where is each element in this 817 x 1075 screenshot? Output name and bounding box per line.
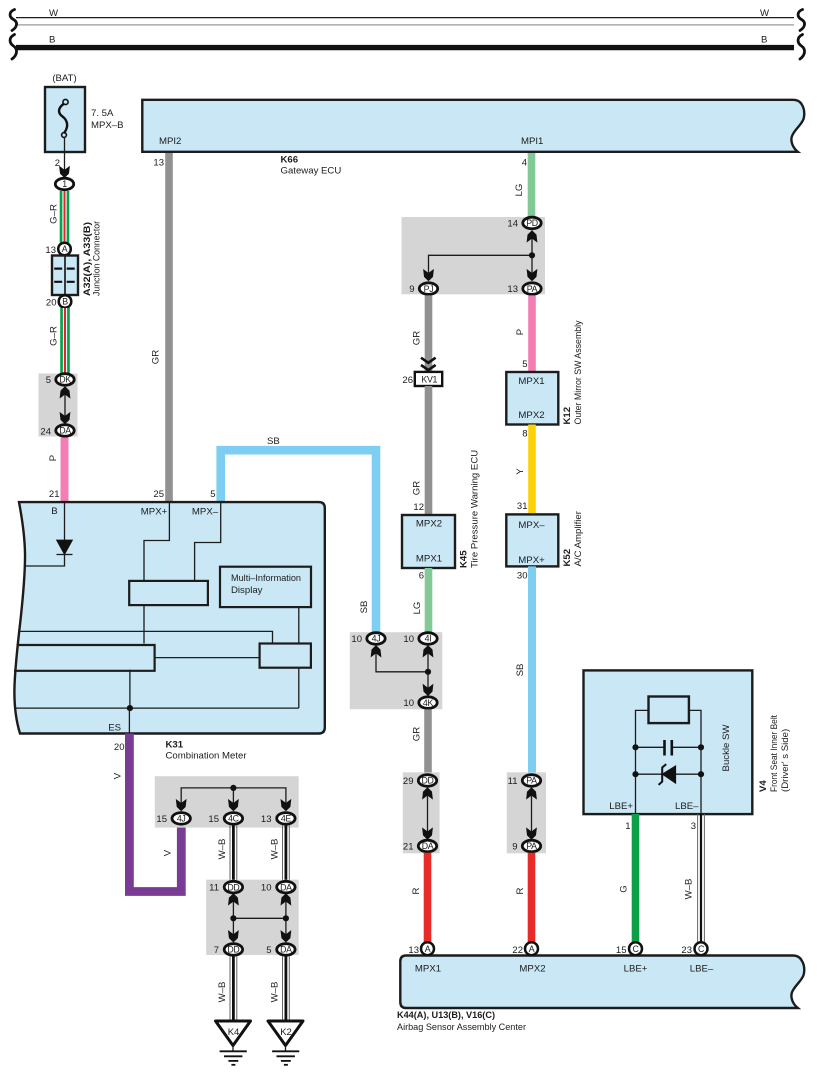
svg-text:21: 21 bbox=[403, 842, 414, 853]
svg-text:DK: DK bbox=[59, 375, 71, 385]
svg-text:23: 23 bbox=[681, 945, 692, 956]
svg-text:MPX–B: MPX–B bbox=[91, 120, 124, 131]
svg-text:1: 1 bbox=[62, 179, 67, 189]
svg-text:V4: V4 bbox=[758, 780, 769, 792]
svg-text:PA: PA bbox=[526, 776, 537, 786]
svg-text:PD: PD bbox=[526, 218, 538, 228]
svg-text:GR: GR bbox=[412, 331, 423, 345]
svg-text:15: 15 bbox=[156, 814, 167, 825]
svg-text:K2: K2 bbox=[280, 1027, 292, 1038]
svg-text:K4: K4 bbox=[228, 1027, 240, 1038]
svg-text:LG: LG bbox=[514, 184, 525, 197]
svg-text:LBE–: LBE– bbox=[675, 801, 699, 812]
svg-text:5: 5 bbox=[210, 489, 215, 500]
svg-text:(BAT): (BAT) bbox=[52, 73, 76, 84]
svg-text:14: 14 bbox=[507, 219, 518, 230]
svg-text:ES: ES bbox=[108, 723, 121, 734]
svg-text:MPI2: MPI2 bbox=[159, 136, 181, 147]
svg-text:4E: 4E bbox=[281, 814, 292, 824]
svg-text:10: 10 bbox=[351, 634, 362, 645]
svg-text:K12: K12 bbox=[562, 407, 573, 425]
svg-text:11: 11 bbox=[209, 883, 219, 894]
svg-text:4I: 4I bbox=[425, 634, 432, 644]
svg-text:MPX2: MPX2 bbox=[518, 410, 544, 421]
svg-text:V: V bbox=[163, 849, 174, 856]
svg-text:DA: DA bbox=[280, 945, 292, 955]
svg-text:A: A bbox=[62, 244, 68, 254]
svg-text:DD: DD bbox=[227, 945, 239, 955]
svg-text:20: 20 bbox=[46, 298, 57, 309]
svg-text:10: 10 bbox=[403, 634, 414, 645]
svg-text:4J: 4J bbox=[177, 814, 186, 824]
svg-text:W: W bbox=[49, 8, 59, 19]
svg-text:13: 13 bbox=[507, 284, 518, 295]
svg-text:B: B bbox=[62, 297, 68, 307]
svg-text:4: 4 bbox=[522, 158, 527, 169]
svg-text:MPX–: MPX– bbox=[192, 507, 219, 518]
svg-text:Multi–Information: Multi–Information bbox=[231, 573, 301, 584]
svg-text:DA: DA bbox=[59, 426, 71, 436]
svg-text:R: R bbox=[515, 887, 526, 894]
svg-text:7. 5A: 7. 5A bbox=[91, 108, 114, 119]
svg-text:MPX+: MPX+ bbox=[518, 555, 545, 566]
svg-text:29: 29 bbox=[403, 776, 414, 787]
svg-text:4J: 4J bbox=[372, 634, 381, 644]
svg-text:DA: DA bbox=[280, 882, 292, 892]
svg-text:15: 15 bbox=[616, 945, 627, 956]
svg-text:25: 25 bbox=[153, 489, 164, 500]
svg-text:5: 5 bbox=[522, 359, 527, 370]
svg-text:Buckle SW: Buckle SW bbox=[721, 724, 732, 772]
svg-text:A: A bbox=[425, 944, 431, 954]
svg-text:10: 10 bbox=[403, 698, 414, 709]
svg-text:9: 9 bbox=[409, 284, 414, 295]
svg-text:B: B bbox=[761, 35, 767, 46]
svg-text:6: 6 bbox=[419, 571, 424, 582]
svg-text:MPX1: MPX1 bbox=[518, 376, 544, 387]
svg-text:K31: K31 bbox=[166, 740, 184, 751]
svg-text:13: 13 bbox=[153, 158, 164, 169]
svg-text:13: 13 bbox=[408, 945, 419, 956]
svg-text:V: V bbox=[113, 772, 124, 779]
svg-text:20: 20 bbox=[114, 742, 125, 753]
svg-text:G: G bbox=[619, 885, 630, 892]
svg-text:24: 24 bbox=[40, 427, 51, 438]
svg-text:A: A bbox=[529, 944, 535, 954]
svg-text:W: W bbox=[760, 8, 770, 19]
svg-text:W–B: W–B bbox=[217, 839, 228, 860]
svg-text:SB: SB bbox=[359, 601, 370, 614]
svg-text:LBE+: LBE+ bbox=[624, 964, 648, 975]
svg-text:Tire Pressure Warning ECU: Tire Pressure Warning ECU bbox=[470, 450, 481, 568]
svg-text:7: 7 bbox=[214, 945, 219, 956]
svg-text:MPX–: MPX– bbox=[518, 520, 545, 531]
svg-text:MPX+: MPX+ bbox=[141, 507, 168, 518]
svg-text:26: 26 bbox=[402, 375, 413, 386]
svg-text:Airbag Sensor Assembly Center: Airbag Sensor Assembly Center bbox=[397, 1022, 527, 1033]
svg-text:PA: PA bbox=[527, 284, 538, 294]
svg-text:C: C bbox=[698, 944, 705, 954]
svg-text:11: 11 bbox=[508, 776, 518, 787]
svg-text:13: 13 bbox=[261, 814, 272, 825]
svg-text:W–B: W–B bbox=[270, 839, 281, 860]
svg-text:GR: GR bbox=[412, 481, 423, 495]
svg-text:LBE+: LBE+ bbox=[609, 801, 633, 812]
svg-text:K66: K66 bbox=[281, 155, 299, 166]
svg-text:Junction Connector: Junction Connector bbox=[92, 220, 103, 296]
svg-text:4C: 4C bbox=[228, 814, 240, 824]
svg-text:Combination Meter: Combination Meter bbox=[166, 751, 248, 762]
svg-text:G–R: G–R bbox=[49, 204, 60, 224]
svg-text:GR: GR bbox=[151, 350, 162, 364]
svg-text:(Driver' s Side): (Driver' s Side) bbox=[780, 729, 791, 792]
svg-text:MPX1: MPX1 bbox=[416, 554, 442, 565]
svg-text:P: P bbox=[48, 455, 59, 461]
svg-text:8: 8 bbox=[522, 429, 527, 440]
svg-text:G–R: G–R bbox=[49, 326, 60, 346]
svg-text:4K: 4K bbox=[423, 698, 434, 708]
svg-text:1: 1 bbox=[625, 821, 630, 832]
svg-text:3: 3 bbox=[691, 821, 696, 832]
svg-text:GR: GR bbox=[412, 727, 423, 741]
svg-text:Display: Display bbox=[231, 585, 263, 596]
svg-text:C: C bbox=[632, 944, 639, 954]
svg-text:5: 5 bbox=[46, 375, 51, 386]
svg-text:KV1: KV1 bbox=[421, 374, 437, 384]
svg-text:9: 9 bbox=[512, 842, 517, 853]
svg-text:15: 15 bbox=[208, 814, 219, 825]
svg-text:K44(A), U13(B), V16(C): K44(A), U13(B), V16(C) bbox=[397, 1010, 495, 1021]
svg-text:B: B bbox=[49, 35, 55, 46]
svg-text:12: 12 bbox=[413, 502, 424, 513]
svg-text:LBE–: LBE– bbox=[690, 964, 714, 975]
svg-text:30: 30 bbox=[517, 571, 528, 582]
svg-text:K52: K52 bbox=[562, 549, 573, 567]
svg-text:W–B: W–B bbox=[217, 982, 228, 1003]
svg-text:DD: DD bbox=[421, 776, 433, 786]
svg-text:Gateway ECU: Gateway ECU bbox=[281, 166, 342, 177]
svg-text:Outer Mirror SW Assembly: Outer Mirror SW Assembly bbox=[573, 320, 584, 424]
svg-text:R: R bbox=[411, 887, 422, 894]
svg-text:DA: DA bbox=[422, 841, 434, 851]
svg-text:10: 10 bbox=[261, 883, 272, 894]
svg-text:MPX2: MPX2 bbox=[416, 519, 442, 530]
svg-text:DD: DD bbox=[227, 882, 239, 892]
svg-text:31: 31 bbox=[517, 501, 528, 512]
svg-text:K45: K45 bbox=[459, 550, 470, 568]
svg-text:LG: LG bbox=[412, 602, 423, 615]
svg-text:PJ: PJ bbox=[424, 284, 434, 294]
svg-text:MPX1: MPX1 bbox=[415, 964, 441, 975]
svg-text:MPI1: MPI1 bbox=[521, 136, 543, 147]
svg-text:SB: SB bbox=[267, 436, 280, 447]
svg-text:P: P bbox=[515, 329, 526, 335]
svg-text:B: B bbox=[51, 506, 57, 517]
svg-text:5: 5 bbox=[266, 945, 271, 956]
svg-text:22: 22 bbox=[512, 945, 523, 956]
svg-text:21: 21 bbox=[49, 489, 60, 500]
svg-text:W–B: W–B bbox=[270, 982, 281, 1003]
svg-text:2: 2 bbox=[55, 158, 60, 169]
svg-text:A/C Amplifier: A/C Amplifier bbox=[573, 510, 584, 566]
svg-text:W–B: W–B bbox=[684, 879, 695, 900]
svg-text:Front Seat Inner Belt: Front Seat Inner Belt bbox=[769, 715, 780, 792]
svg-text:MPX2: MPX2 bbox=[519, 964, 545, 975]
svg-text:SB: SB bbox=[515, 664, 526, 677]
svg-text:Y: Y bbox=[515, 468, 526, 475]
svg-text:PA: PA bbox=[526, 841, 537, 851]
